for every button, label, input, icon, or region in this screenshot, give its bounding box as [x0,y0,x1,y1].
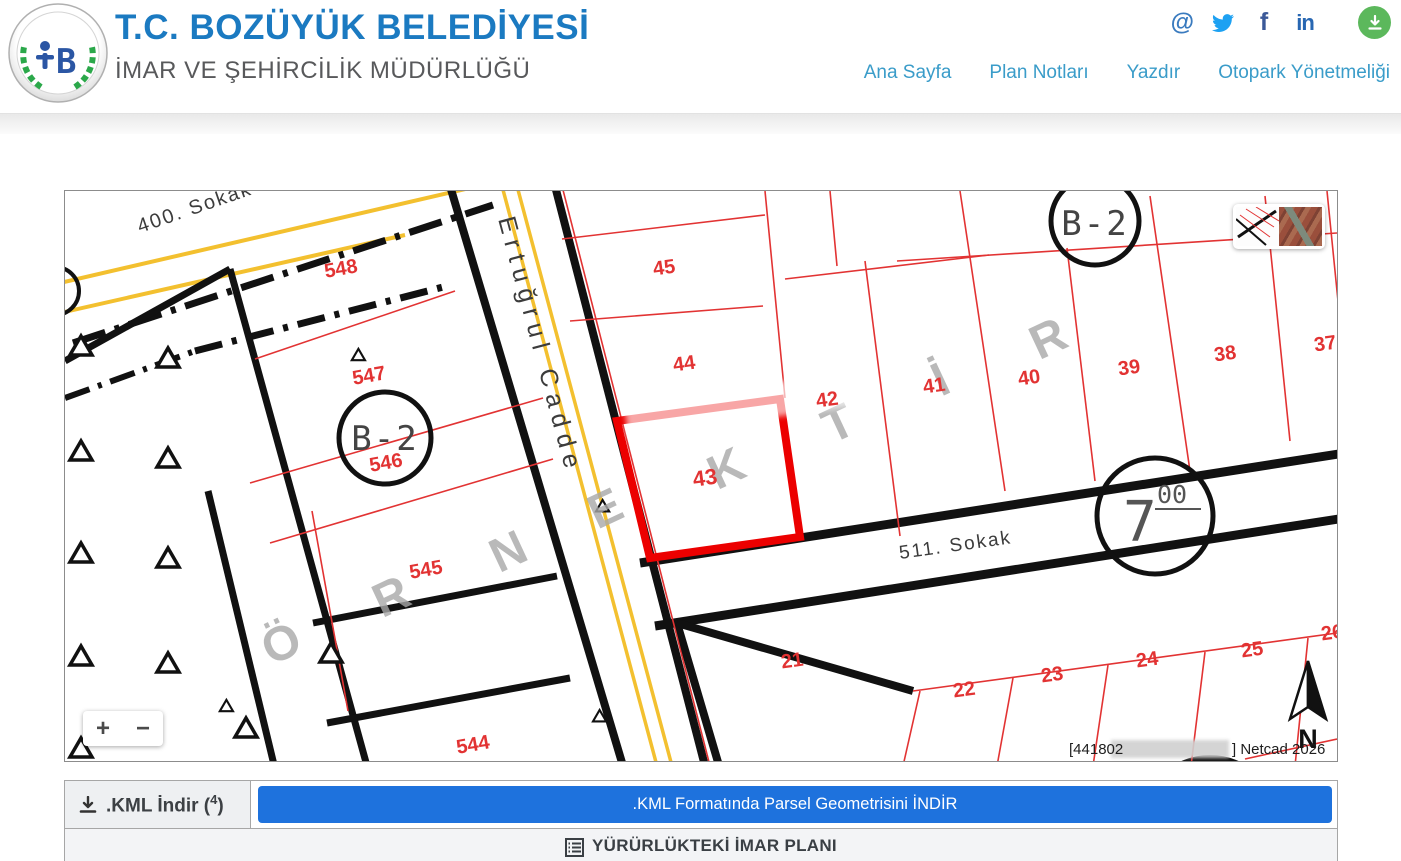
municipality-logo: BOZÜYÜK BELEDİYESİ B [8,3,108,103]
svg-text:Ö: Ö [253,612,309,676]
svg-text:22: 22 [952,678,977,703]
page-header: BOZÜYÜK BELEDİYESİ B T.C. BOZÜYÜK BELEDİ… [0,0,1401,113]
map-credit: [441802 ] Netcad 2026 [1069,740,1325,758]
road-width-sup: 00 [1157,480,1187,509]
header-divider-strip [0,113,1401,134]
svg-text:39: 39 [1117,356,1142,381]
svg-text:548: 548 [323,255,360,282]
main-nav: Ana Sayfa Plan Notları Yazdır Otopark Yö… [864,62,1390,84]
svg-text:41: 41 [922,374,947,399]
satellite-layer-thumb [1279,207,1322,246]
svg-text:42: 42 [815,388,840,413]
email-at-icon[interactable]: @ [1168,9,1196,37]
linkedin-icon[interactable]: in [1291,9,1319,37]
kml-action-row: .KML İndir (4) .KML Formatında Parsel Ge… [64,780,1338,829]
road-width-main: 7 [1123,490,1157,555]
svg-text:545: 545 [408,556,445,583]
logo-arc-text: BOZÜYÜK BELEDİYESİ [8,3,104,5]
zone-label: B-2 [1061,204,1128,244]
download-tray-icon [79,796,97,814]
current-plan-title: YÜRÜRLÜKTEKİ İMAR PLANI [592,836,837,856]
nav-item-yazdir[interactable]: Yazdır [1127,62,1181,84]
svg-text:44: 44 [672,351,698,376]
zone-circles: B-2 B-2 [339,191,1139,484]
svg-text:544: 544 [455,731,493,759]
zoom-in-button[interactable]: + [88,717,118,741]
svg-text:25: 25 [1240,638,1265,663]
svg-text:546: 546 [368,449,405,476]
svg-text:B: B [56,42,76,82]
nav-item-ana-sayfa[interactable]: Ana Sayfa [864,62,952,84]
download-circle-button[interactable] [1358,6,1391,39]
svg-text:43: 43 [691,463,719,491]
svg-text:26: 26 [1320,621,1337,646]
social-row: @ f in [1168,6,1391,39]
svg-text:547: 547 [351,362,388,389]
cadastral-map-viewport[interactable]: B-2 B-2 7 00 Ö R N E K T İ R 400. Sokak [64,190,1338,762]
nav-item-otopark-yonetmeligi[interactable]: Otopark Yönetmeliği [1218,62,1390,84]
current-plan-header-row: YÜRÜRLÜKTEKİ İMAR PLANI [64,829,1338,861]
kml-download-label: .KML İndir (4) [106,792,224,817]
plan-layer-thumb [1236,207,1279,246]
street-label-511: 511. Sokak [898,527,1013,564]
svg-text:21: 21 [780,649,805,674]
zoom-out-button[interactable]: − [128,717,158,741]
layer-switcher-thumbnail[interactable] [1233,204,1325,249]
street-label-400: 400. Sokak [134,191,255,238]
map-zoom-control: + − [83,711,163,746]
kml-button-cell: .KML Formatında Parsel Geometrisini İNDİ… [251,780,1338,829]
nav-item-plan-notlari[interactable]: Plan Notları [989,62,1088,84]
svg-text:N: N [482,521,536,584]
svg-text:E: E [580,478,631,540]
svg-text:40: 40 [1017,366,1042,391]
svg-text:37: 37 [1313,332,1337,357]
page-subtitle: İMAR VE ŞEHİRCİLİK MÜDÜRLÜĞÜ [115,57,589,85]
svg-text:23: 23 [1040,663,1065,688]
svg-text:45: 45 [652,256,677,281]
svg-text:38: 38 [1213,342,1238,367]
list-icon [565,838,584,857]
road-width-circle: 7 00 [1097,458,1213,574]
credit-prefix: [441802 [1069,741,1123,758]
title-block: T.C. BOZÜYÜK BELEDİYESİ İMAR VE ŞEHİRCİL… [115,8,589,85]
svg-text:R: R [1022,308,1076,371]
kml-download-parcel-button[interactable]: .KML Formatında Parsel Geometrisini İNDİ… [258,786,1332,823]
facebook-icon[interactable]: f [1250,9,1278,37]
page-title: T.C. BOZÜYÜK BELEDİYESİ [115,8,589,48]
cadastral-map-svg: B-2 B-2 7 00 Ö R N E K T İ R 400. Sokak [65,191,1337,761]
svg-text:24: 24 [1135,647,1161,672]
credit-suffix: ] Netcad 2026 [1232,741,1325,758]
park-triangle-symbols [70,336,609,757]
twitter-icon[interactable] [1209,9,1237,37]
kml-download-cell[interactable]: .KML İndir (4) [64,780,251,829]
download-icon [1367,15,1383,31]
